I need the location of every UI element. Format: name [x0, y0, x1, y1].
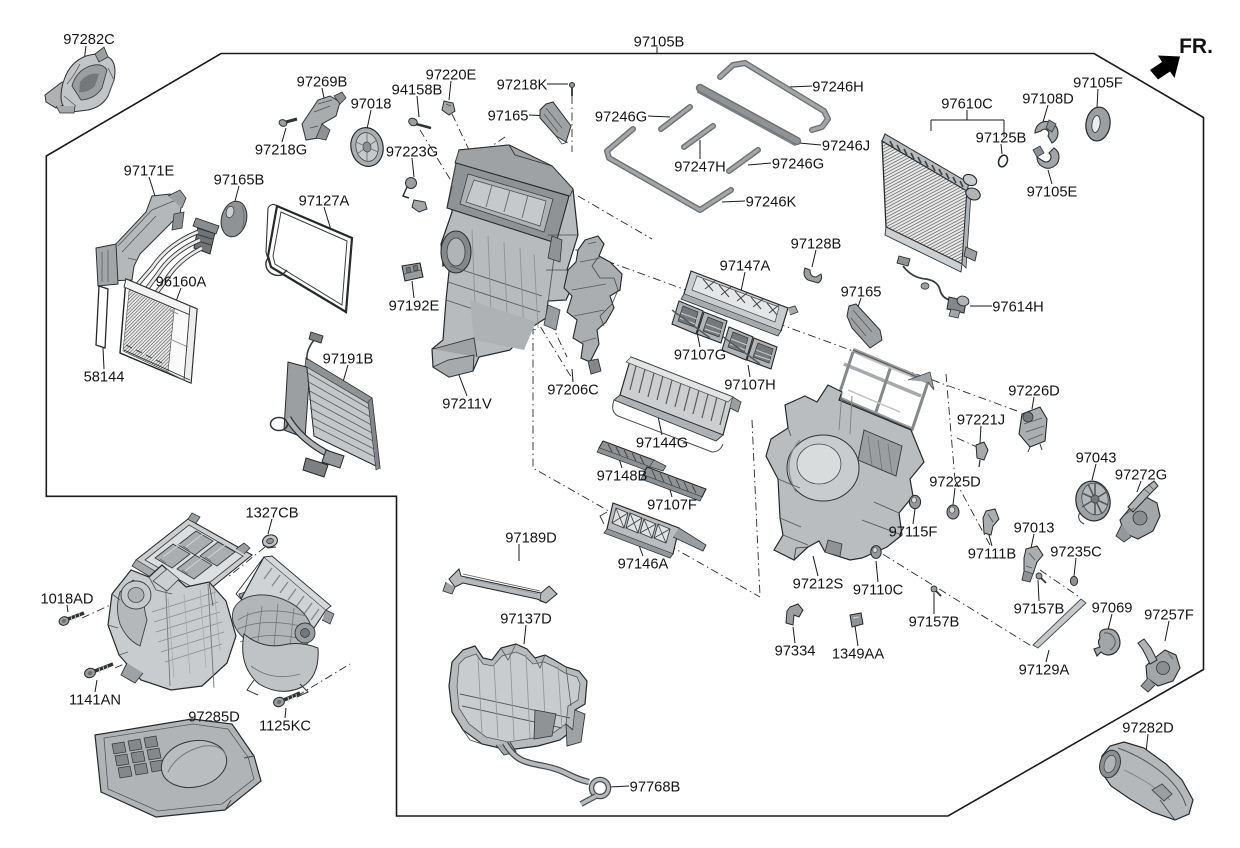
svg-text:97191B: 97191B: [323, 352, 374, 368]
svg-text:97282D: 97282D: [1122, 721, 1173, 737]
svg-text:97148B: 97148B: [597, 469, 648, 485]
svg-text:97107F: 97107F: [647, 498, 697, 514]
svg-text:97285D: 97285D: [188, 710, 239, 726]
svg-text:97220E: 97220E: [426, 68, 477, 84]
svg-text:97226D: 97226D: [1008, 384, 1059, 400]
svg-text:97221J: 97221J: [957, 413, 1005, 429]
svg-text:97105B: 97105B: [634, 35, 685, 51]
svg-text:97212S: 97212S: [793, 577, 844, 593]
svg-text:97246G: 97246G: [772, 157, 824, 173]
svg-text:97108D: 97108D: [1022, 92, 1073, 108]
svg-text:97043: 97043: [1076, 451, 1117, 467]
svg-text:97189D: 97189D: [505, 531, 556, 547]
svg-text:97247H: 97247H: [674, 160, 725, 176]
svg-text:97165: 97165: [841, 285, 882, 301]
svg-text:97334: 97334: [775, 644, 816, 660]
svg-text:97246G: 97246G: [595, 110, 647, 126]
svg-text:97147A: 97147A: [720, 259, 771, 275]
svg-text:97218G: 97218G: [255, 143, 307, 159]
svg-text:1327CB: 1327CB: [245, 506, 298, 522]
svg-text:97165: 97165: [488, 109, 529, 125]
svg-text:97211V: 97211V: [442, 397, 492, 413]
svg-text:97115F: 97115F: [889, 525, 938, 541]
svg-text:97171E: 97171E: [124, 164, 175, 180]
svg-text:97223G: 97223G: [386, 145, 438, 161]
svg-text:97137D: 97137D: [500, 612, 551, 628]
svg-text:97069: 97069: [1092, 601, 1133, 617]
svg-text:97246J: 97246J: [822, 139, 870, 155]
svg-text:1018AD: 1018AD: [40, 592, 93, 608]
svg-text:97192E: 97192E: [389, 299, 440, 315]
svg-text:97257F: 97257F: [1144, 608, 1194, 624]
svg-text:96160A: 96160A: [156, 275, 207, 291]
svg-text:97144G: 97144G: [636, 436, 688, 452]
svg-text:97246K: 97246K: [746, 195, 797, 211]
svg-text:97018: 97018: [351, 97, 392, 113]
svg-text:97225D: 97225D: [929, 475, 980, 491]
svg-text:97157B: 97157B: [1014, 602, 1065, 618]
svg-text:97128B: 97128B: [791, 237, 842, 253]
svg-text:97272G: 97272G: [1115, 468, 1167, 484]
svg-text:97110C: 97110C: [853, 583, 904, 599]
svg-text:97127A: 97127A: [299, 194, 350, 210]
svg-text:58144: 58144: [84, 370, 125, 386]
svg-text:97246H: 97246H: [812, 80, 863, 96]
svg-text:97269B: 97269B: [297, 75, 348, 91]
svg-text:94158B: 94158B: [392, 83, 443, 99]
svg-text:FR.: FR.: [1179, 35, 1213, 58]
svg-text:97107G: 97107G: [674, 348, 726, 364]
svg-text:97206C: 97206C: [547, 383, 599, 399]
svg-text:97768B: 97768B: [630, 780, 681, 796]
svg-text:97157B: 97157B: [909, 615, 960, 631]
svg-text:97614H: 97614H: [992, 300, 1043, 316]
svg-text:97282C: 97282C: [63, 32, 115, 48]
svg-text:97218K: 97218K: [497, 78, 548, 94]
svg-text:97235C: 97235C: [1050, 545, 1102, 561]
svg-text:97165B: 97165B: [214, 173, 265, 189]
svg-text:97013: 97013: [1014, 521, 1055, 537]
svg-text:1349AA: 1349AA: [832, 647, 884, 663]
svg-text:97129A: 97129A: [1019, 663, 1070, 679]
svg-text:97610C: 97610C: [941, 97, 993, 113]
svg-text:97146A: 97146A: [618, 557, 669, 573]
svg-text:97105F: 97105F: [1073, 76, 1123, 92]
svg-text:97105E: 97105E: [1027, 185, 1078, 201]
svg-text:97125B: 97125B: [976, 131, 1027, 147]
svg-text:97111B: 97111B: [968, 547, 1017, 563]
svg-text:1141AN: 1141AN: [69, 693, 121, 709]
svg-text:1125KC: 1125KC: [259, 719, 311, 735]
svg-text:97107H: 97107H: [724, 378, 775, 394]
